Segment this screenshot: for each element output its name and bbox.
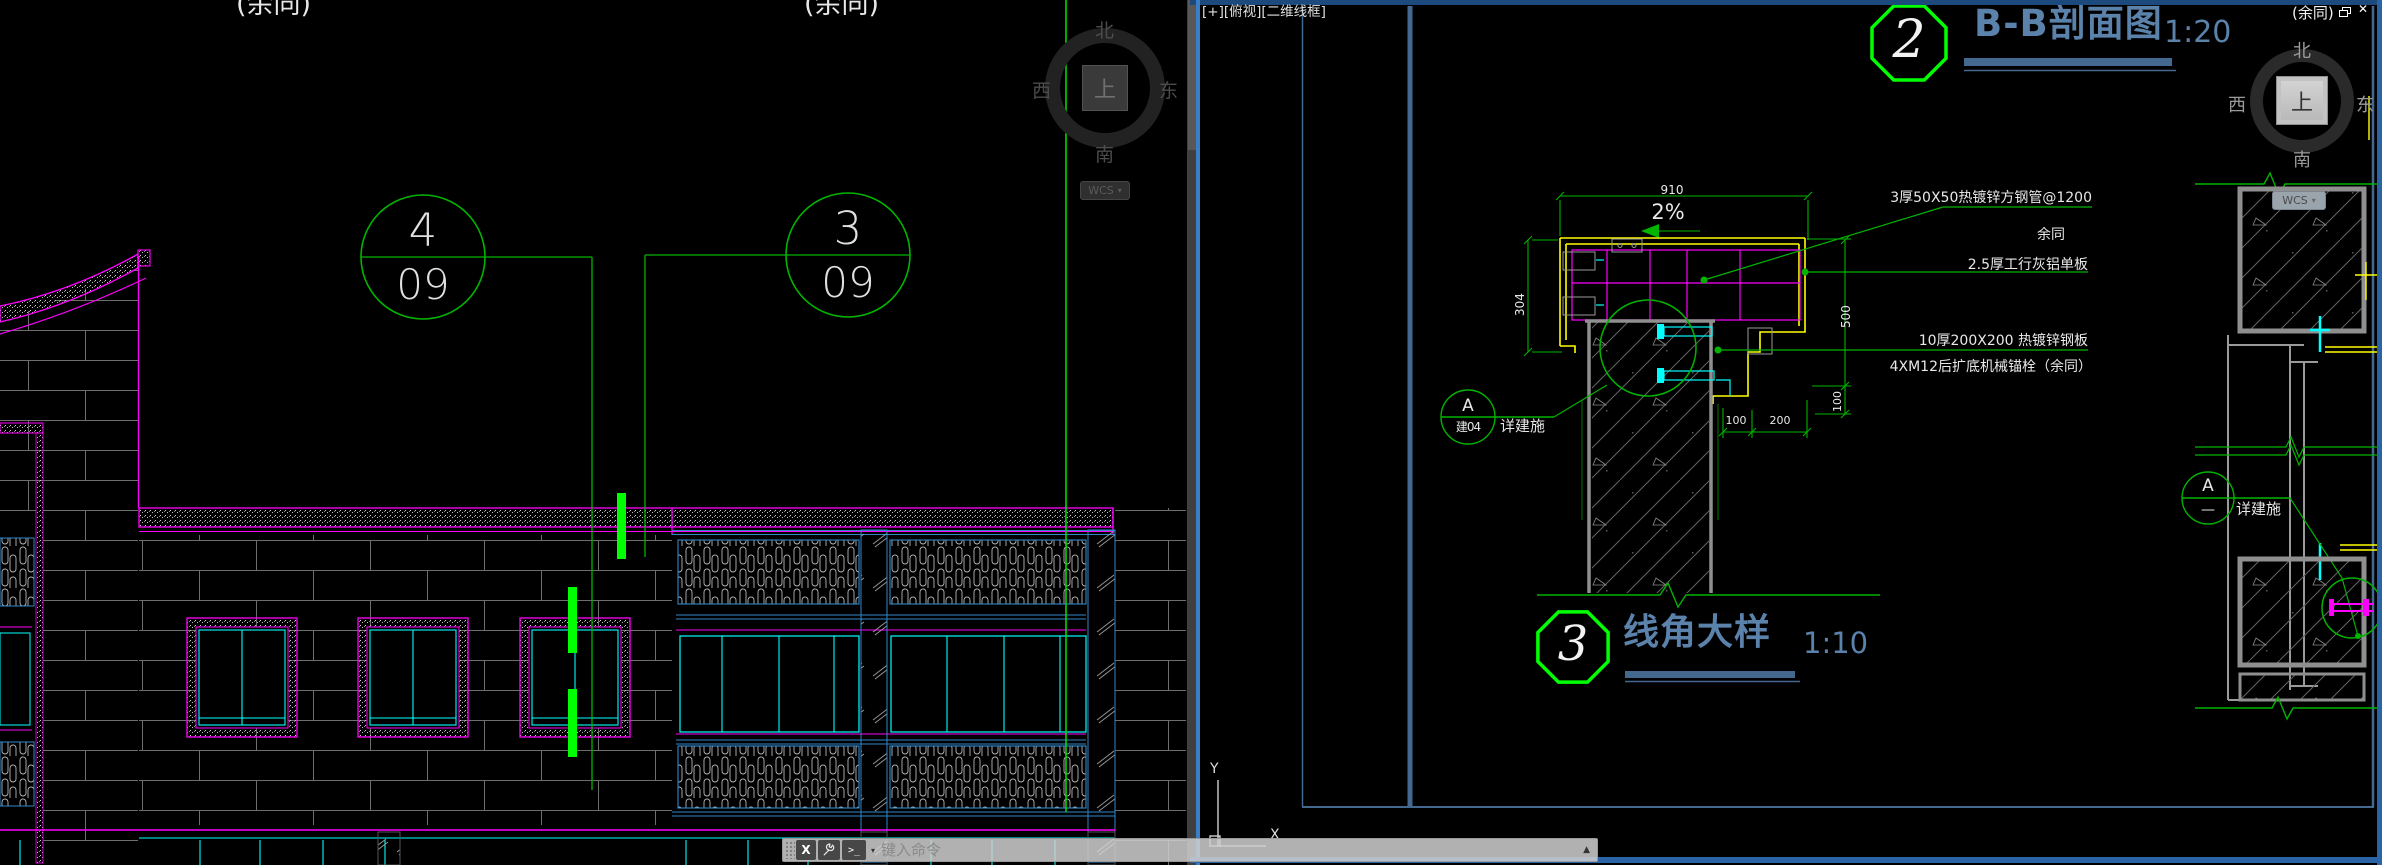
detail-bubble-2-number: 2: [1884, 12, 1934, 69]
expand-command-history-button[interactable]: ▲: [1583, 845, 1590, 855]
viewcube-up-face[interactable]: 上: [2276, 76, 2328, 125]
dim-100: 100: [1718, 415, 1754, 427]
bb-section-scale: 1:20: [2164, 16, 2231, 49]
viewcube-west[interactable]: 西: [1032, 76, 1051, 103]
viewcube-up-face[interactable]: 上: [1082, 65, 1128, 111]
recent-commands-dropdown[interactable]: ▾: [867, 846, 879, 855]
viewcube-east[interactable]: 东: [2356, 91, 2374, 117]
right-window-right-border[interactable]: [2377, 0, 2382, 865]
scrollbar-handle[interactable]: [1188, 0, 1196, 150]
ucs-icon: [1210, 780, 1266, 846]
close-window-icon[interactable]: ✕: [2358, 2, 2368, 16]
grid-bubble-4-number: 4: [398, 206, 448, 256]
detail-bubble-3-number: 3: [1550, 618, 1596, 671]
annotation-anchor-bolt: 4XM12后扩底机械锚栓（余同）: [1890, 356, 2092, 376]
lattice-bay: [672, 530, 1115, 862]
dim-100-vert: 100: [1832, 391, 1844, 412]
yutong-label-left: (余同): [236, 0, 311, 20]
callout-main-sheet: 建04: [1444, 421, 1492, 434]
annotation-alu-panel: 2.5厚工行灰铝单板: [1968, 254, 2088, 274]
viewcube-right[interactable]: 北 西 东 南 上: [2250, 49, 2354, 153]
dim-304: 304: [1514, 293, 1527, 316]
dim-500: 500: [1840, 305, 1853, 328]
callout-right-note: 详建施: [2236, 501, 2281, 518]
command-prompt-button[interactable]: >_: [842, 840, 866, 860]
viewcube-east[interactable]: 东: [1159, 76, 1178, 103]
ucs-y-label: Y: [1210, 762, 1219, 777]
wcs-label: WCS: [2282, 194, 2308, 207]
viewcube-west[interactable]: 西: [2228, 91, 2246, 117]
viewcube-north[interactable]: 北: [1095, 16, 1114, 43]
right-window-top-border: [1190, 0, 2382, 5]
annotation-steel-plate: 10厚200X200 热镀锌钢板: [1919, 330, 2088, 350]
annotation-yutong: 余同: [2037, 224, 2065, 244]
dim-slope-2pct: 2%: [1648, 201, 1688, 224]
elevation-windows: [187, 618, 630, 737]
left-elevation: [0, 0, 1186, 865]
close-command-bar-button[interactable]: X: [796, 840, 816, 860]
grid-bubble-4-sheet: 09: [383, 262, 463, 308]
grid-bubble-3-sheet: 09: [808, 260, 888, 306]
command-bar-grip[interactable]: [785, 841, 795, 859]
viewcube-south[interactable]: 南: [2293, 146, 2311, 172]
customize-wrench-button[interactable]: [818, 840, 840, 860]
command-input[interactable]: [879, 840, 1583, 860]
callout-main-letter: A: [1452, 397, 1484, 416]
yutong-label-right: (余同): [804, 0, 879, 20]
viewport-controls-label[interactable]: [+][俯视][二维线框]: [1202, 5, 1326, 20]
bb-section-title: B-B剖面图: [1974, 4, 2163, 45]
chevron-down-icon: ▾: [1118, 186, 1122, 195]
callout-right-sheet: —: [2194, 503, 2222, 518]
wcs-dropdown-left[interactable]: WCS ▾: [1080, 181, 1130, 200]
corner-detail-title: 线角大样: [1623, 613, 1771, 653]
viewcube-south[interactable]: 南: [1095, 140, 1114, 167]
callout-main-note: 详建施: [1500, 418, 1545, 435]
right-window-left-border[interactable]: [1196, 0, 1200, 865]
dim-200: 200: [1760, 415, 1800, 427]
viewcube-left[interactable]: 北 西 东 南 上: [1045, 28, 1165, 148]
dim-910: 910: [1650, 184, 1694, 197]
corner-detail-scale: 1:10: [1803, 628, 1868, 660]
cad-application-window: [+][俯视][二维线框] 北 西 东 南 上 WCS ▾ 北 西 东 南 上 …: [0, 0, 2382, 865]
chevron-down-icon: ▾: [2312, 196, 2316, 205]
callout-right-letter: A: [2192, 477, 2224, 496]
wcs-label: WCS: [1088, 184, 1114, 197]
grid-bubble-3-number: 3: [823, 204, 873, 254]
overlay-yutong-label: (余同): [2292, 5, 2334, 22]
corner-strip: [0, 538, 34, 806]
wrench-icon: [822, 843, 836, 857]
viewcube-north[interactable]: 北: [2293, 37, 2311, 63]
restore-window-icon[interactable]: [2339, 7, 2350, 16]
wcs-dropdown-right[interactable]: WCS ▾: [2272, 191, 2326, 210]
bb-section-strip: [2182, 96, 2382, 719]
annotation-steel-tube: 3厚50X50热镀锌方钢管@1200: [1890, 187, 2092, 207]
command-bar[interactable]: X >_ ▾ ▲: [782, 838, 1598, 862]
